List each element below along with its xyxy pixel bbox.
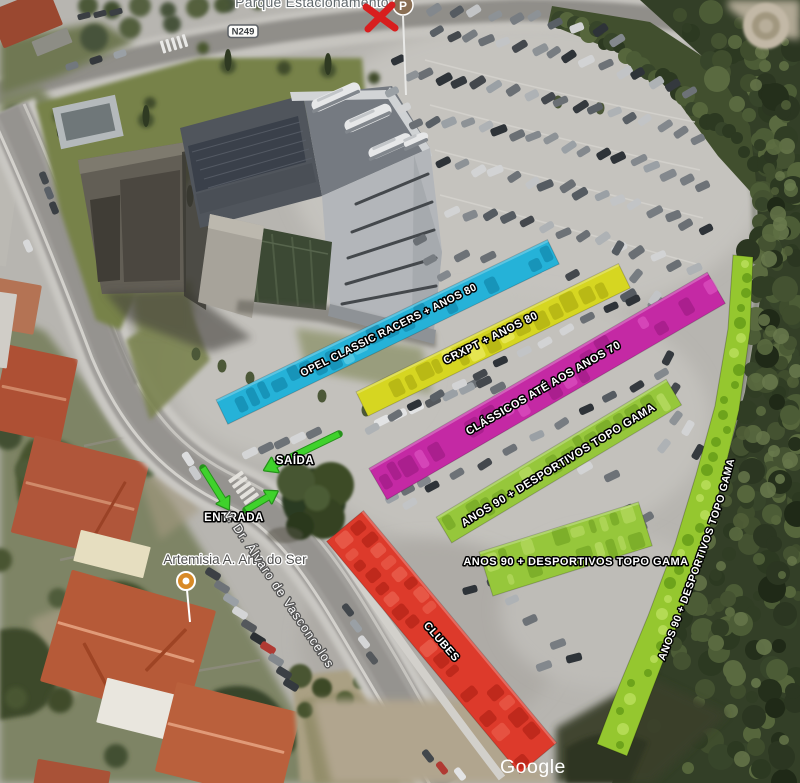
svg-text:P: P [399, 0, 407, 13]
svg-text:ANOS 90 + DESPORTIVOS TOPO GAM: ANOS 90 + DESPORTIVOS TOPO GAMA [463, 556, 688, 568]
svg-text:N249: N249 [232, 27, 255, 38]
svg-text:Artemisia A. Arte do Ser: Artemisia A. Arte do Ser [163, 552, 307, 567]
svg-text:SAÍDA: SAÍDA [276, 454, 314, 467]
svg-text:Google: Google [500, 756, 566, 778]
